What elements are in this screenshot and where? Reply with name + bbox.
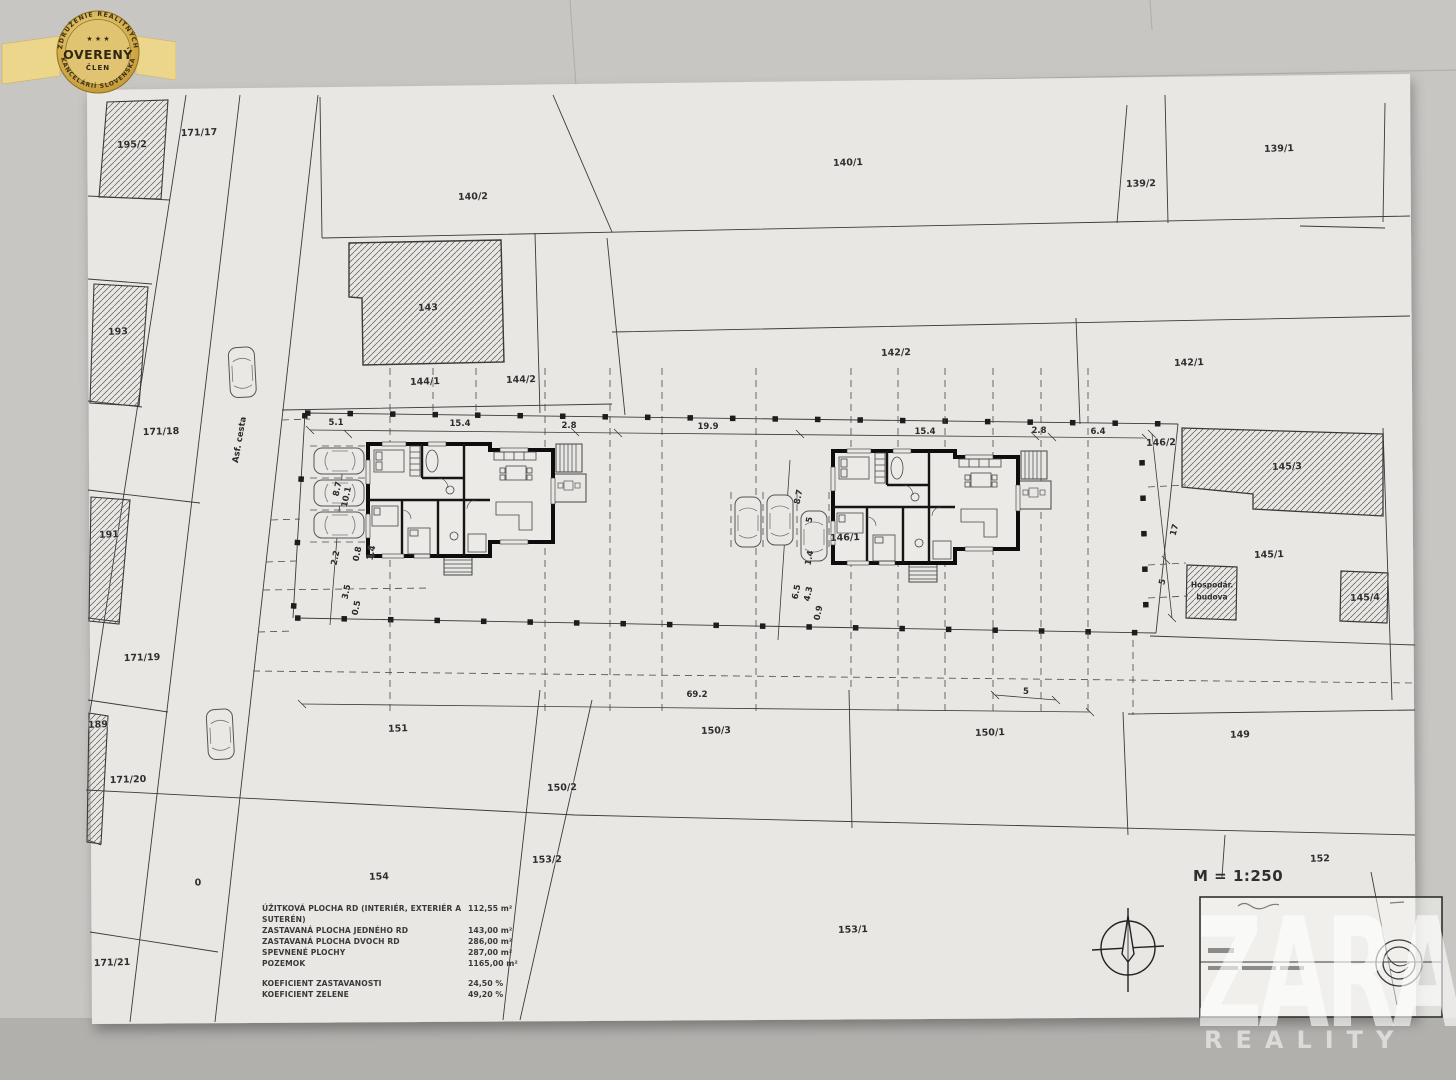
parcel-label-149: 149: [1230, 729, 1250, 741]
title-block: [1200, 897, 1442, 1017]
parcel-label-151: 151: [388, 723, 408, 735]
dimension-label: 5: [1023, 687, 1029, 697]
legend-value: 112,55 m²: [468, 903, 512, 914]
parcel-label-140-2: 140/2: [458, 191, 488, 203]
legend-row: ZASTAVANÁ PLOCHA DVOCH RD286,00 m²: [262, 936, 572, 947]
legend-row: SPEVNENÉ PLOCHY287,00 m²: [262, 947, 572, 958]
parcel-label-153-2: 153/2: [532, 854, 562, 866]
parcel-label-171-21: 171/21: [94, 957, 131, 969]
parcel-label-195-2: 195/2: [117, 139, 147, 151]
parcel-label-171-17: 171/17: [181, 127, 218, 139]
dimension-label: 6.4: [1090, 427, 1105, 437]
parcel-label-139-2: 139/2: [1126, 178, 1156, 190]
legend-row: ZASTAVANÁ PLOCHA JEDNÉHO RD143,00 m²: [262, 925, 572, 936]
legend-value: 24,50 %: [468, 978, 503, 989]
legend-row: KOEFICIENT ZASTAVANOSTI24,50 %: [262, 978, 572, 989]
parcel-label-146-2: 146/2: [1146, 437, 1176, 449]
parcel-label-146-1: 146/1: [830, 532, 860, 544]
parcel-label-143: 143: [418, 302, 438, 314]
ribbon-right: [136, 36, 176, 80]
parcel-label-152: 152: [1310, 853, 1330, 865]
verified-member-badge: ZDRUŽENIE REALITNÝCH KANCELÁRIÍ SLOVENSK…: [0, 0, 176, 120]
badge-stars: ★ ★ ★: [86, 35, 109, 43]
parcel-label-145-4: 145/4: [1350, 592, 1380, 604]
dimension-label: 15.4: [915, 427, 936, 437]
dimension-label: 69.2: [687, 690, 708, 700]
dimension-label: 5.1: [328, 418, 343, 428]
legend-label: ÚŽITKOVÁ PLOCHA RD (INTERIÉR, EXTERIÉR A…: [262, 903, 468, 925]
parcel-label-142-2: 142/2: [881, 347, 911, 359]
legend-value: 287,00 m²: [468, 947, 512, 958]
area-legend: ÚŽITKOVÁ PLOCHA RD (INTERIÉR, EXTERIÉR A…: [262, 903, 572, 1000]
parcel-label-153-1: 153/1: [838, 924, 868, 936]
parcel-label-139-1: 139/1: [1264, 143, 1294, 155]
legend-value: 286,00 m²: [468, 936, 512, 947]
legend-label: ZASTAVANÁ PLOCHA JEDNÉHO RD: [262, 925, 468, 936]
parcel-label-145-1: 145/1: [1254, 549, 1284, 561]
legend-label: KOEFICIENT ZELENE: [262, 989, 468, 1000]
parcel-label-171-18: 171/18: [143, 426, 180, 438]
legend-row: POZEMOK1165,00 m²: [262, 958, 572, 969]
parcel-label-140-1: 140/1: [833, 157, 863, 169]
photo-of-site-plan: 195/2171/17193171/18191171/19189171/2001…: [0, 0, 1456, 1080]
parcel-label-142-1: 142/1: [1174, 357, 1204, 369]
parcel-label-144-2: 144/2: [506, 374, 536, 386]
legend-label: ZASTAVANÁ PLOCHA DVOCH RD: [262, 936, 468, 947]
legend-label: POZEMOK: [262, 958, 468, 969]
parcel-label-193: 193: [108, 326, 128, 338]
outbuilding-label-line2: budova: [1196, 593, 1227, 602]
parcel-label-191: 191: [99, 529, 119, 541]
parcel-label-0: 0: [194, 877, 201, 888]
parcel-label-144-1: 144/1: [410, 376, 440, 388]
scale-label: M = 1:250: [1193, 867, 1283, 885]
parcel-label-171-20: 171/20: [110, 774, 147, 786]
legend-label: SPEVNENÉ PLOCHY: [262, 947, 468, 958]
legend-value: 143,00 m²: [468, 925, 512, 936]
legend-value: 49,20 %: [468, 989, 503, 1000]
dimension-label: 2.8: [1031, 426, 1046, 436]
parcel-label-189: 189: [88, 719, 108, 731]
outbuilding-label-line1: Hospodár.: [1191, 581, 1233, 590]
parcel-label-150-2: 150/2: [547, 782, 577, 794]
ribbon-left: [2, 36, 60, 84]
parcel-label-154: 154: [369, 871, 389, 883]
parcel-label-150-1: 150/1: [975, 727, 1005, 739]
legend-row: ÚŽITKOVÁ PLOCHA RD (INTERIÉR, EXTERIÉR A…: [262, 903, 572, 925]
legend-row: KOEFICIENT ZELENE49,20 %: [262, 989, 572, 1000]
badge-title: OVERENÝ: [63, 47, 133, 62]
dimension-label: 15.4: [450, 419, 471, 429]
legend-label: KOEFICIENT ZASTAVANOSTI: [262, 978, 468, 989]
dimension-label: 2.8: [561, 421, 576, 431]
table-shadow-strip: [0, 1018, 1456, 1080]
legend-value: 1165,00 m²: [468, 958, 518, 969]
parcel-label-171-19: 171/19: [124, 652, 161, 664]
parcel-label-145-3: 145/3: [1272, 461, 1302, 473]
dimension-label: 19.9: [698, 422, 719, 432]
badge-subtitle: ČLEN: [86, 63, 110, 72]
site-plan-svg: [0, 0, 1456, 1080]
parcel-label-150-3: 150/3: [701, 725, 731, 737]
